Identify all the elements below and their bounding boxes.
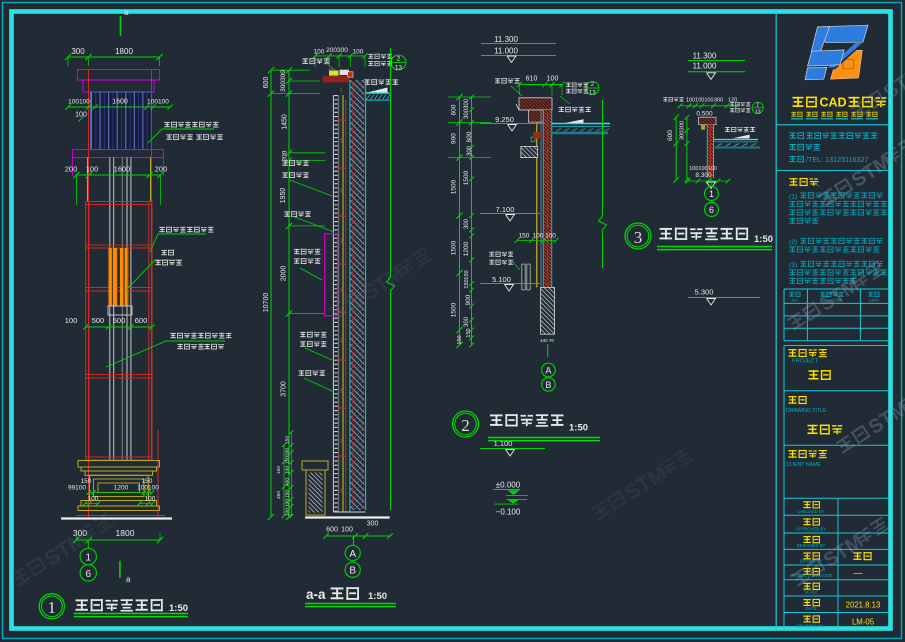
svg-text:0.500: 0.500: [696, 111, 713, 118]
svg-text:A: A: [545, 366, 551, 376]
svg-text:1450: 1450: [282, 114, 289, 130]
svg-text:1:50: 1:50: [569, 423, 588, 434]
svg-text:100: 100: [88, 496, 99, 503]
svg-text:100: 100: [285, 508, 291, 516]
svg-text:2000: 2000: [281, 266, 288, 282]
svg-text:600: 600: [263, 77, 270, 89]
svg-text:300: 300: [367, 521, 379, 528]
svg-text:2021.8.13: 2021.8.13: [846, 600, 881, 609]
svg-text:1200: 1200: [114, 485, 129, 492]
svg-text:2: 2: [591, 82, 594, 88]
svg-text:100: 100: [314, 49, 325, 56]
svg-text:—: —: [854, 567, 863, 577]
svg-text:5.300: 5.300: [695, 288, 714, 297]
svg-text:13: 13: [755, 109, 761, 115]
svg-text:a-a: a-a: [306, 587, 326, 602]
svg-text:1500: 1500: [463, 170, 470, 185]
svg-text:NO.: NO.: [791, 298, 798, 303]
svg-text:300300: 300300: [280, 70, 287, 92]
svg-text:1500: 1500: [451, 179, 458, 194]
svg-text:300300: 300300: [464, 98, 470, 119]
svg-text:1: 1: [86, 553, 92, 564]
svg-text:100: 100: [545, 233, 556, 240]
svg-text:600: 600: [451, 104, 458, 115]
svg-text:±0.000: ±0.000: [496, 481, 521, 490]
svg-text:LM-05: LM-05: [852, 617, 875, 626]
svg-text:100100100: 100100100: [686, 98, 714, 104]
svg-text:1:50: 1:50: [754, 234, 773, 245]
svg-text:/TEL: 13123116327: /TEL: 13123116327: [806, 155, 869, 164]
svg-text:1800: 1800: [116, 528, 135, 538]
svg-text:150: 150: [285, 436, 291, 444]
svg-text:150: 150: [276, 466, 282, 474]
svg-text:100100: 100100: [137, 485, 159, 492]
svg-text::: :: [817, 178, 820, 188]
svg-text:3: 3: [634, 228, 643, 247]
svg-text:DESIGNED BY: DESIGNED BY: [797, 543, 826, 548]
svg-text:APPROVED BY: APPROVED BY: [796, 527, 826, 532]
svg-text:200: 200: [282, 150, 289, 161]
svg-text:500: 500: [92, 316, 105, 325]
svg-text:200300: 200300: [326, 47, 348, 54]
svg-text:1500: 1500: [451, 302, 458, 317]
svg-text:100: 100: [353, 49, 364, 56]
svg-text:100: 100: [341, 527, 353, 534]
svg-text:1200: 1200: [463, 241, 470, 256]
svg-text:610: 610: [526, 76, 538, 83]
svg-text:150: 150: [285, 456, 291, 464]
svg-text:DATE: DATE: [869, 298, 880, 303]
svg-text:200: 200: [285, 448, 291, 456]
svg-text:300: 300: [464, 316, 470, 327]
svg-text:150: 150: [466, 328, 472, 337]
svg-text:11.000: 11.000: [693, 62, 717, 71]
svg-text:100: 100: [547, 76, 559, 83]
svg-text:6: 6: [86, 569, 92, 580]
svg-text:1:50: 1:50: [368, 591, 387, 602]
svg-text:1600: 1600: [114, 165, 131, 174]
svg-text:150: 150: [464, 279, 470, 288]
svg-text:900: 900: [451, 133, 458, 144]
svg-text:300300: 300300: [680, 121, 686, 140]
svg-text:A: A: [349, 549, 356, 560]
svg-text:11.000: 11.000: [494, 47, 518, 56]
svg-text:100: 100: [533, 233, 544, 240]
svg-text:200: 200: [155, 165, 168, 174]
svg-text:500: 500: [113, 316, 126, 325]
svg-text:13: 13: [395, 65, 403, 72]
svg-text:400: 400: [285, 478, 291, 486]
svg-text:1: 1: [48, 598, 57, 617]
svg-text:(2): (2): [789, 239, 797, 246]
svg-text:5.100: 5.100: [492, 275, 511, 284]
svg-text:13: 13: [589, 91, 596, 97]
svg-text:8.300: 8.300: [695, 172, 712, 179]
svg-text:100: 100: [65, 316, 78, 325]
svg-text:300: 300: [714, 98, 723, 104]
svg-text:150: 150: [457, 335, 463, 344]
svg-text:DRAWING TITLE: DRAWING TITLE: [786, 408, 827, 414]
svg-text:2: 2: [461, 416, 470, 435]
svg-text:a: a: [126, 575, 131, 584]
svg-text:600: 600: [326, 527, 338, 534]
svg-text:1: 1: [709, 189, 714, 199]
svg-text:CAD: CAD: [820, 96, 847, 110]
svg-text:100: 100: [285, 499, 291, 507]
svg-text:SCALE: SCALE: [804, 590, 818, 595]
svg-text:440 70: 440 70: [540, 338, 554, 343]
svg-text:DATE: DATE: [806, 606, 817, 611]
svg-text:DRAWING No.: DRAWING No.: [797, 624, 825, 629]
svg-text:300: 300: [464, 218, 470, 229]
svg-text:1500: 1500: [451, 240, 458, 255]
svg-text:600: 600: [667, 130, 674, 141]
svg-text:1:50: 1:50: [169, 603, 188, 614]
svg-text:1600: 1600: [112, 99, 128, 106]
svg-text:11.300: 11.300: [494, 35, 518, 44]
svg-text:300: 300: [71, 47, 85, 56]
svg-text:(1): (1): [789, 194, 797, 201]
svg-text:100: 100: [75, 112, 87, 119]
svg-text:150: 150: [464, 270, 470, 279]
svg-text:CHECKED BY: CHECKED BY: [797, 509, 824, 514]
svg-text:11.300: 11.300: [693, 52, 717, 61]
svg-text:9.250: 9.250: [495, 115, 514, 124]
svg-text:2: 2: [756, 102, 759, 108]
svg-text:6: 6: [709, 205, 714, 215]
svg-text:B: B: [545, 380, 551, 390]
svg-text:−0.100: −0.100: [496, 508, 521, 517]
svg-text:1800: 1800: [115, 47, 133, 56]
svg-text:B: B: [349, 566, 356, 577]
svg-text:250: 250: [276, 491, 282, 499]
svg-text:1950: 1950: [280, 188, 287, 204]
svg-text:7.100: 7.100: [496, 205, 515, 214]
svg-text:1.100: 1.100: [494, 439, 513, 448]
svg-text:a: a: [124, 8, 129, 17]
svg-text:150: 150: [285, 490, 291, 498]
svg-text:150: 150: [519, 233, 530, 240]
svg-text:200: 200: [65, 165, 78, 174]
svg-text:600: 600: [135, 316, 148, 325]
svg-text:100100: 100100: [68, 99, 90, 106]
svg-text:100: 100: [285, 466, 291, 474]
svg-text:100100100: 100100100: [689, 166, 717, 172]
svg-text:(3): (3): [789, 262, 797, 269]
svg-text:CLIENT NAME: CLIENT NAME: [786, 462, 821, 468]
svg-text:99100: 99100: [68, 485, 86, 492]
svg-text:100100: 100100: [147, 99, 169, 106]
svg-text:10700: 10700: [263, 293, 270, 313]
svg-text:PROJECT: PROJECT: [792, 359, 819, 365]
svg-text:3700: 3700: [281, 381, 288, 397]
svg-text:600: 600: [466, 131, 473, 142]
svg-text:900: 900: [465, 294, 472, 305]
svg-text:300: 300: [467, 145, 473, 156]
